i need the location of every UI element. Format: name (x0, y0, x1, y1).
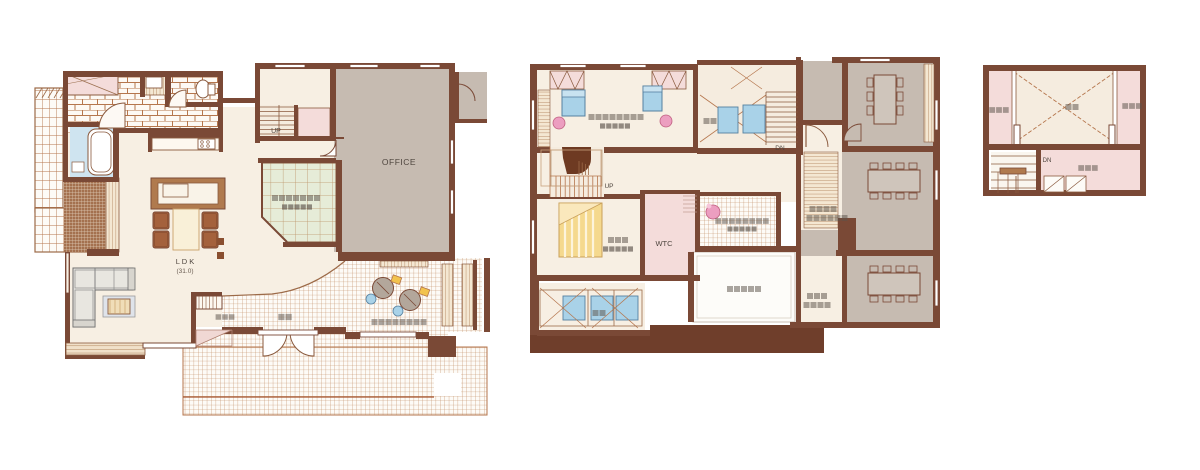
svg-text:DN: DN (1043, 158, 1052, 164)
svg-text:UP: UP (604, 183, 613, 190)
svg-text:DN: DN (775, 145, 785, 152)
svg-text:UP: UP (271, 128, 281, 135)
svg-text:L D K: L D K (176, 257, 194, 266)
svg-text:OFFICE: OFFICE (382, 157, 416, 167)
svg-text:WTC: WTC (655, 239, 673, 248)
svg-text:(31.0): (31.0) (177, 268, 194, 275)
